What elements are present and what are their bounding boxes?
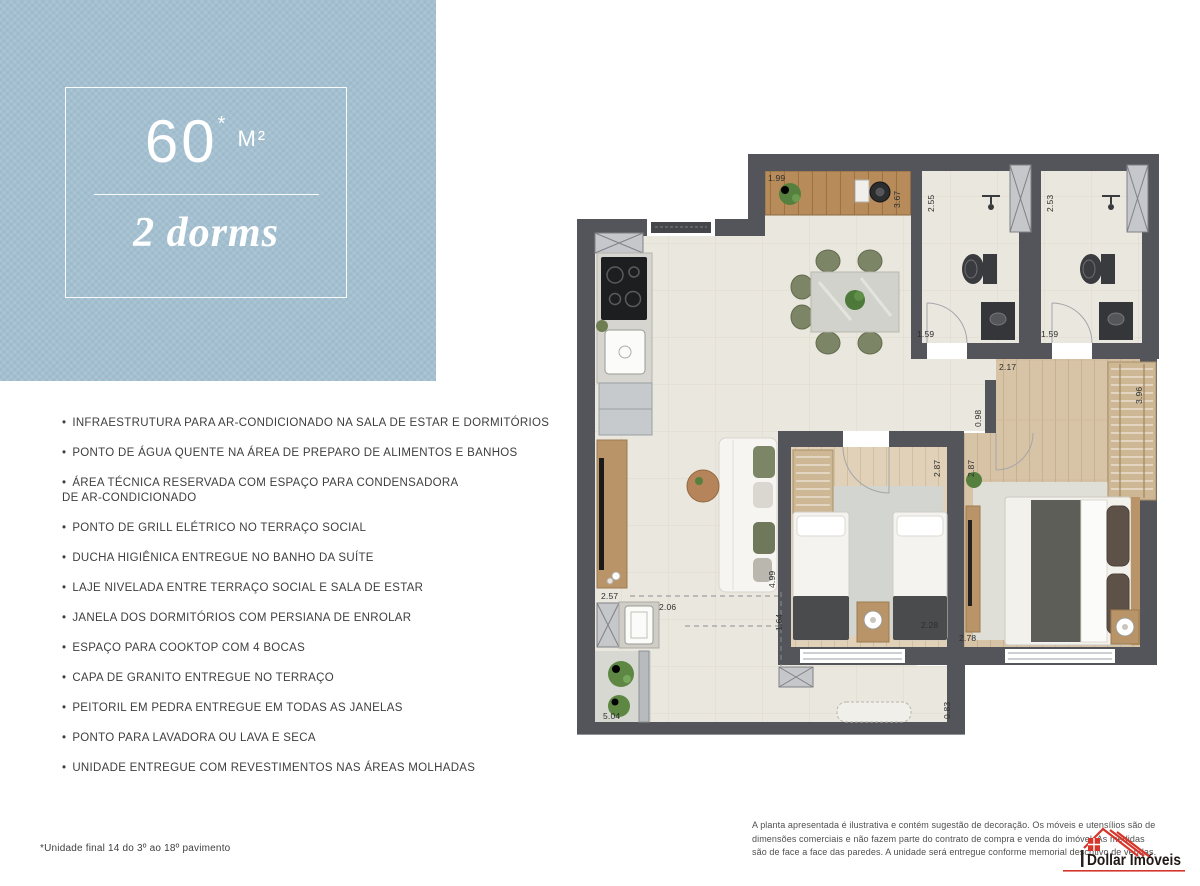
area-row: 60 * M²	[66, 112, 346, 172]
features-list: INFRAESTRUTURA PARA AR-CONDICIONADO NA S…	[62, 416, 592, 791]
feature-item: PONTO DE GRILL ELÉTRICO NO TERRAÇO SOCIA…	[62, 521, 592, 536]
dimension-label: 1.59	[1041, 329, 1058, 339]
dimension-label: 1.59	[917, 329, 934, 339]
area-unit: M²	[237, 128, 267, 150]
dimension-label: 0.83	[942, 702, 952, 719]
card-divider	[94, 194, 319, 195]
dimension-label: 2.55	[926, 195, 936, 212]
dimension-label: 1.64	[774, 614, 784, 631]
floor-plan: 1.993.672.552.531.591.592.170.983.962.87…	[575, 150, 1165, 735]
feature-item: ESPAÇO PARA COOKTOP COM 4 BOCAS	[62, 641, 592, 656]
dimension-label: 2.06	[659, 602, 676, 612]
feature-item: ÁREA TÉCNICA RESERVADA COM ESPAÇO PARA C…	[62, 476, 592, 506]
logo-underline	[1063, 870, 1185, 872]
dimension-label: 1.99	[768, 173, 785, 183]
page: 60 * M² 2 dorms INFRAESTRUTURA PARA AR-C…	[0, 0, 1200, 886]
dimension-label: 2.87	[932, 460, 942, 477]
feature-item: DUCHA HIGIÊNICA ENTREGUE NO BANHO DA SUÍ…	[62, 551, 592, 566]
dimension-label: 4.99	[767, 571, 777, 588]
feature-item: PEITORIL EM PEDRA ENTREGUE EM TODAS AS J…	[62, 701, 592, 716]
unit-card-border: 60 * M² 2 dorms	[65, 87, 347, 298]
dimension-label: 5.04	[603, 711, 620, 721]
dollar-imoveis-logo: Dollar Imóveis	[1060, 812, 1188, 882]
dimension-label: 2.53	[1045, 195, 1055, 212]
feature-item: PONTO PARA LAVADORA OU LAVA E SECA	[62, 731, 592, 746]
dimension-label: 2.87	[966, 460, 976, 477]
logo-text: Dollar Imóveis	[1087, 852, 1181, 869]
feature-item: CAPA DE GRANITO ENTREGUE NO TERRAÇO	[62, 671, 592, 686]
dimension-label: 2.57	[601, 591, 618, 601]
dimension-label: 0.98	[973, 410, 983, 427]
plan-dimension-labels: 1.993.672.552.531.591.592.170.983.962.87…	[575, 150, 1165, 735]
feature-item: LAJE NIVELADA ENTRE TERRAÇO SOCIAL E SAL…	[62, 581, 592, 596]
dimension-label: 3.96	[1134, 387, 1144, 404]
dimension-label: 2.28	[921, 620, 938, 630]
feature-item: PONTO DE ÁGUA QUENTE NA ÁREA DE PREPARO …	[62, 446, 592, 461]
feature-item: UNIDADE ENTREGUE COM REVESTIMENTOS NAS Á…	[62, 761, 592, 776]
logo-bar	[1081, 850, 1084, 867]
feature-item: INFRAESTRUTURA PARA AR-CONDICIONADO NA S…	[62, 416, 592, 431]
dimension-label: 2.78	[959, 633, 976, 643]
dimension-label: 2.17	[999, 362, 1016, 372]
logo-window-icon	[1088, 838, 1100, 851]
area-asterisk: *	[218, 114, 226, 134]
feature-item: JANELA DOS DORMITÓRIOS COM PERSIANA DE E…	[62, 611, 592, 626]
unit-card: 60 * M² 2 dorms	[0, 0, 436, 381]
dimension-label: 3.67	[892, 191, 902, 208]
footnote: *Unidade final 14 do 3º ao 18º pavimento	[40, 843, 230, 854]
area-value: 60	[145, 112, 218, 172]
dorms-label: 2 dorms	[66, 209, 346, 257]
